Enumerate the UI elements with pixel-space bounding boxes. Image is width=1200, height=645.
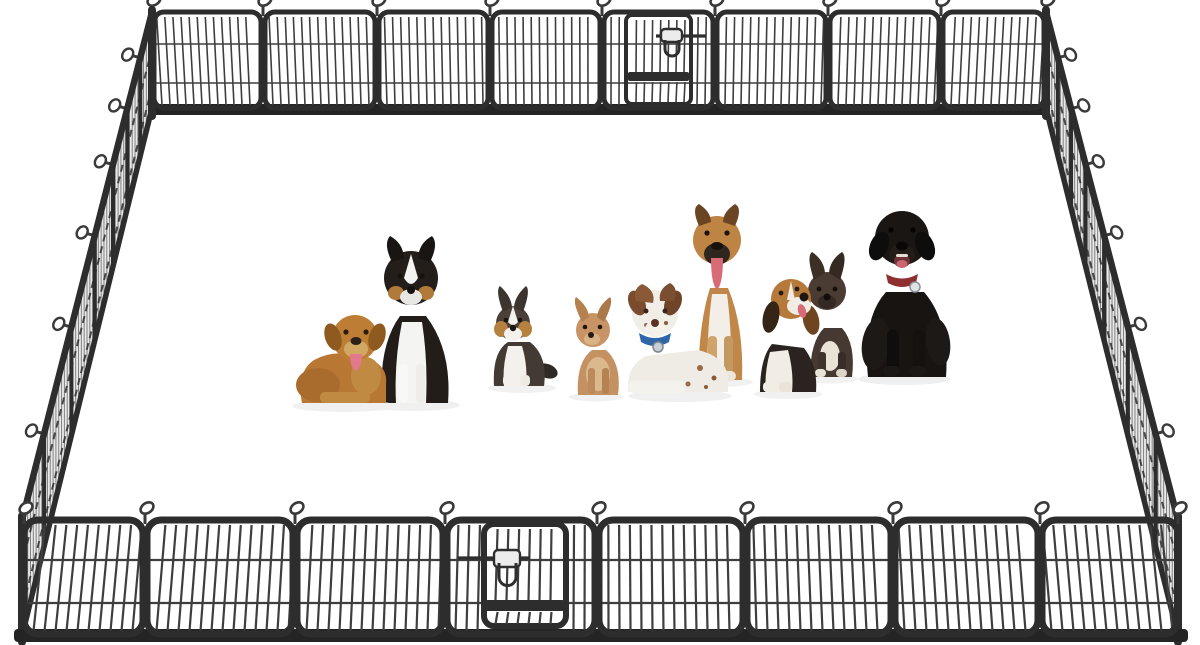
hinge-pin-loop-icon <box>708 0 725 8</box>
front-fence-row <box>14 500 1189 642</box>
dog-corgi-puppy <box>488 286 560 393</box>
fence-panel <box>147 520 295 634</box>
dog-chihuahua <box>569 297 623 402</box>
hinge-pin-loop-icon <box>107 97 123 113</box>
back-fence-row <box>144 0 1057 115</box>
hinge-pin-loop-icon <box>138 500 155 516</box>
fence-panel <box>297 520 443 634</box>
back-gate-panel <box>604 12 713 108</box>
hinge-pin-loop-icon <box>120 46 136 62</box>
hinge-pin-loop-icon <box>590 500 607 516</box>
fence-panel <box>379 12 488 108</box>
hinge-pin-loop-icon <box>93 153 109 169</box>
hinge-pin-loop-icon <box>1033 500 1050 516</box>
hinge-pin-loop-icon <box>1160 422 1176 438</box>
hinge-pin-loop-icon <box>74 224 90 240</box>
front-gate-panel <box>447 520 595 634</box>
hinge-pin-loop-icon <box>370 0 387 8</box>
fence-panel <box>492 12 600 108</box>
playpen-product-image <box>0 0 1200 645</box>
hinge-pin-loop-icon <box>821 0 838 8</box>
dog-newfoundland <box>858 211 953 385</box>
hinge-pin-loop-icon <box>934 0 951 8</box>
hinge-pin-loop-icon <box>595 0 612 8</box>
hinge-pin-loop-icon <box>24 422 40 438</box>
fence-panel <box>154 12 261 108</box>
fence-panel <box>747 520 891 634</box>
hinge-pin-loop-icon <box>288 500 305 516</box>
hinge-pin-loop-icon <box>1090 153 1106 169</box>
hinge-pin-loop-icon <box>256 0 273 8</box>
fence-panel <box>895 520 1038 634</box>
hinge-pin-loop-icon <box>483 0 500 8</box>
playpen-scene <box>0 0 1200 645</box>
fence-panel <box>265 12 375 108</box>
fence-panel <box>599 520 743 634</box>
hinge-pin-loop-icon <box>438 500 455 516</box>
dogs-group <box>292 204 953 412</box>
hinge-pin-loop-icon <box>886 500 903 516</box>
fence-panel <box>830 12 939 108</box>
hinge-pin-loop-icon <box>738 500 755 516</box>
fence-panel <box>717 12 826 108</box>
hinge-pin-loop-icon <box>1076 97 1092 113</box>
dog-golden-retriever <box>292 315 396 412</box>
hinge-pin-loop-icon <box>51 316 67 332</box>
fence-panel <box>943 12 1044 108</box>
hinge-pin-loop-icon <box>1133 316 1149 332</box>
hinge-pin-loop-icon <box>1109 224 1125 240</box>
hinge-pin-loop-icon <box>1063 46 1079 62</box>
